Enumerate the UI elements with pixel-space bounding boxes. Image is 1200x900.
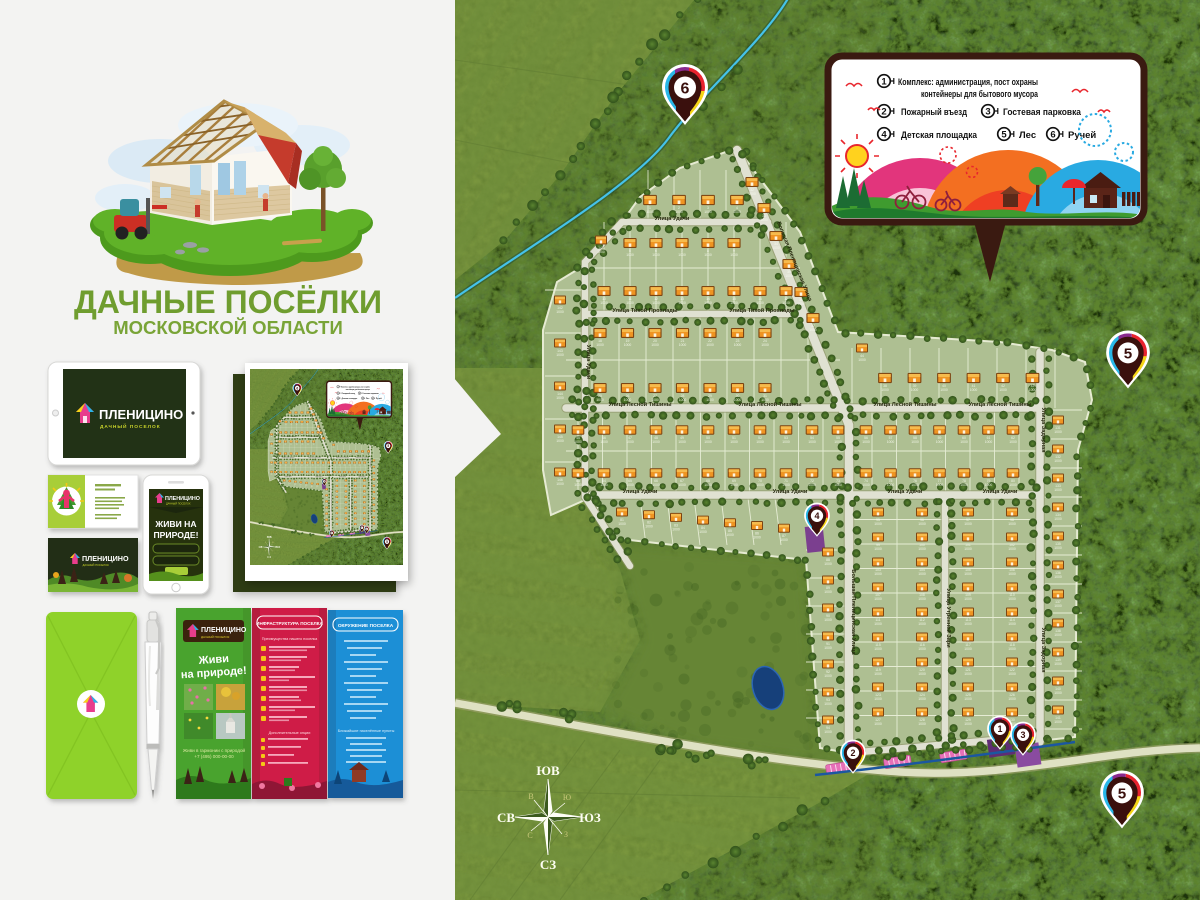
svg-text:1271000: 1271000 xyxy=(874,718,882,726)
svg-text:Улица Лесной Тишины: Улица Лесной Тишины xyxy=(608,401,671,408)
svg-text:5: 5 xyxy=(1001,129,1007,140)
svg-text:ДАЧНЫЙ ПОСЕЛОК: ДАЧНЫЙ ПОСЕЛОК xyxy=(166,502,191,506)
svg-text:Улица Тихой Прохлады: Улица Тихой Прохлады xyxy=(729,307,794,314)
svg-text:1381000: 1381000 xyxy=(1054,629,1062,637)
svg-text:+7 (495) 000-00-00: +7 (495) 000-00-00 xyxy=(194,754,234,759)
svg-text:1331000: 1331000 xyxy=(1054,484,1062,492)
svg-text:6: 6 xyxy=(1050,129,1055,140)
svg-text:1291000: 1291000 xyxy=(964,718,972,726)
svg-text:Улица Утренней Зари: Улица Утренней Зари xyxy=(945,588,952,648)
svg-text:Улица Задорная: Улица Задорная xyxy=(1040,627,1046,672)
svg-text:1221000: 1221000 xyxy=(1008,668,1016,676)
svg-text:1001000: 1001000 xyxy=(918,543,926,551)
svg-text:Улица Удачи: Улица Удачи xyxy=(585,345,591,380)
svg-text:Улица Лесной Тишины: Улица Лесной Тишины xyxy=(968,401,1031,408)
svg-text:ПЛЕНИЦИНО: ПЛЕНИЦИНО xyxy=(82,554,129,563)
svg-text:1461000: 1461000 xyxy=(556,478,564,486)
svg-text:1401000: 1401000 xyxy=(1054,687,1062,695)
svg-text:ПРИРОДЕ!: ПРИРОДЕ! xyxy=(154,530,199,540)
svg-text:1421000: 1421000 xyxy=(556,306,564,314)
svg-text:Улица Удачи: Улица Удачи xyxy=(623,489,658,495)
svg-text:ДАЧНЫЙ ПОСЕЛОК: ДАЧНЫЙ ПОСЕЛОК xyxy=(201,635,230,639)
svg-text:1361000: 1361000 xyxy=(1054,571,1062,579)
svg-text:ЖИВИ НА: ЖИВИ НА xyxy=(154,519,196,529)
svg-text:4: 4 xyxy=(815,511,820,521)
svg-text:1261000: 1261000 xyxy=(1008,693,1016,701)
svg-text:1311000: 1311000 xyxy=(1054,426,1062,434)
svg-text:Улица Лесной Тишины: Улица Лесной Тишины xyxy=(873,401,936,408)
svg-text:Улица Тихой Прохлады: Улица Тихой Прохлады xyxy=(612,307,677,314)
svg-text:Пожарный въезд: Пожарный въезд xyxy=(901,107,967,118)
svg-text:С: С xyxy=(527,831,532,840)
svg-text:Комплекс: администрация, пост: Комплекс: администрация, пост охраны xyxy=(898,77,1038,88)
svg-text:6: 6 xyxy=(681,81,690,98)
svg-text:СЗ: СЗ xyxy=(540,857,556,872)
svg-text:1371000: 1371000 xyxy=(1054,600,1062,608)
svg-text:Ю: Ю xyxy=(563,793,571,802)
svg-text:1441000: 1441000 xyxy=(556,392,564,400)
svg-text:контейнеры для бытового мусора: контейнеры для бытового мусора xyxy=(921,89,1039,99)
svg-text:1041000: 1041000 xyxy=(918,568,926,576)
svg-text:1251000: 1251000 xyxy=(964,693,972,701)
svg-text:Лес: Лес xyxy=(1019,130,1036,141)
svg-text:Улица Задорная: Улица Задорная xyxy=(1040,407,1046,452)
svg-text:1241000: 1241000 xyxy=(918,693,926,701)
svg-text:Улица Удачи: Улица Удачи xyxy=(983,489,1018,495)
svg-text:ЮЗ: ЮЗ xyxy=(579,810,601,825)
svg-text:Улица Удачи: Улица Удачи xyxy=(773,489,808,495)
svg-text:3: 3 xyxy=(1021,730,1026,740)
svg-text:ДАЧНЫЙ ПОСЕЛОК: ДАЧНЫЙ ПОСЕЛОК xyxy=(83,563,110,567)
svg-text:1021000: 1021000 xyxy=(1008,543,1016,551)
svg-text:2: 2 xyxy=(851,748,856,758)
svg-text:1321000: 1321000 xyxy=(1054,455,1062,463)
svg-text:Улица Удачи: Улица Удачи xyxy=(888,489,923,495)
svg-text:1351000: 1351000 xyxy=(1054,542,1062,550)
svg-text:1211000: 1211000 xyxy=(964,668,972,676)
svg-text:ЮВ: ЮВ xyxy=(536,763,560,778)
svg-text:1091000: 1091000 xyxy=(964,593,972,601)
svg-text:1231000: 1231000 xyxy=(874,693,882,701)
svg-text:Живи: Живи xyxy=(197,653,229,667)
svg-text:1071000: 1071000 xyxy=(874,593,882,601)
svg-text:3: 3 xyxy=(985,106,990,117)
svg-text:Живи в гармонии с природой: Живи в гармонии с природой xyxy=(183,747,246,753)
svg-text:Преимущества нашего поселка: Преимущества нашего поселка xyxy=(262,637,318,641)
svg-text:ПЛЕНИЦИНО: ПЛЕНИЦИНО xyxy=(165,496,200,502)
svg-text:1341000: 1341000 xyxy=(1054,513,1062,521)
svg-text:2: 2 xyxy=(881,106,886,117)
svg-text:1: 1 xyxy=(881,76,887,87)
svg-text:ИНФРАСТРУКТУРА ПОСЕЛКА: ИНФРАСТРУКТУРА ПОСЕЛКА xyxy=(256,621,323,626)
svg-text:5: 5 xyxy=(1118,786,1127,803)
svg-text:1081000: 1081000 xyxy=(918,593,926,601)
svg-text:Ручей: Ручей xyxy=(1068,130,1096,141)
svg-text:1471000: 1471000 xyxy=(597,246,605,254)
svg-text:ПЛЕНИЦИНО: ПЛЕНИЦИНО xyxy=(99,407,183,422)
svg-text:1201000: 1201000 xyxy=(918,668,926,676)
svg-text:1391000: 1391000 xyxy=(1054,658,1062,666)
svg-text:МОСКОВСКОЙ ОБЛАСТИ: МОСКОВСКОЙ ОБЛАСТИ xyxy=(113,317,343,338)
svg-text:Гостевая парковка: Гостевая парковка xyxy=(1003,107,1082,118)
svg-text:СВ: СВ xyxy=(497,810,515,825)
svg-text:ОКРУЖЕНИЕ ПОСЕЛКА: ОКРУЖЕНИЕ ПОСЕЛКА xyxy=(338,623,394,629)
svg-text:Дополнительные опции: Дополнительные опции xyxy=(269,731,311,735)
svg-text:4: 4 xyxy=(881,129,887,140)
svg-text:1: 1 xyxy=(998,724,1003,734)
svg-text:1451000: 1451000 xyxy=(556,435,564,443)
svg-text:1411000: 1411000 xyxy=(1054,716,1062,724)
svg-text:1281000: 1281000 xyxy=(918,718,926,726)
svg-text:Улица Удачи: Улица Удачи xyxy=(655,216,690,222)
svg-text:1061000: 1061000 xyxy=(1008,568,1016,576)
svg-text:ДАЧНЫЕ ПОСЁЛКИ: ДАЧНЫЕ ПОСЁЛКИ xyxy=(74,284,382,320)
svg-text:В: В xyxy=(528,792,533,801)
svg-text:1431000: 1431000 xyxy=(556,349,564,357)
svg-text:ПЛЕНИЦИНО: ПЛЕНИЦИНО xyxy=(201,627,247,634)
svg-text:Улица Лесной Тишины: Улица Лесной Тишины xyxy=(738,401,801,408)
svg-text:1051000: 1051000 xyxy=(964,568,972,576)
svg-text:1011000: 1011000 xyxy=(964,543,972,551)
svg-text:1031000: 1031000 xyxy=(874,568,882,576)
svg-text:З: З xyxy=(564,830,568,839)
svg-text:5: 5 xyxy=(1124,346,1133,363)
svg-text:Детская площадка: Детская площадка xyxy=(901,130,978,141)
svg-text:Большая Пленицинская Улица: Большая Пленицинская Улица xyxy=(850,569,856,655)
svg-text:Ближайшие населённые пункты: Ближайшие населённые пункты xyxy=(338,729,395,733)
